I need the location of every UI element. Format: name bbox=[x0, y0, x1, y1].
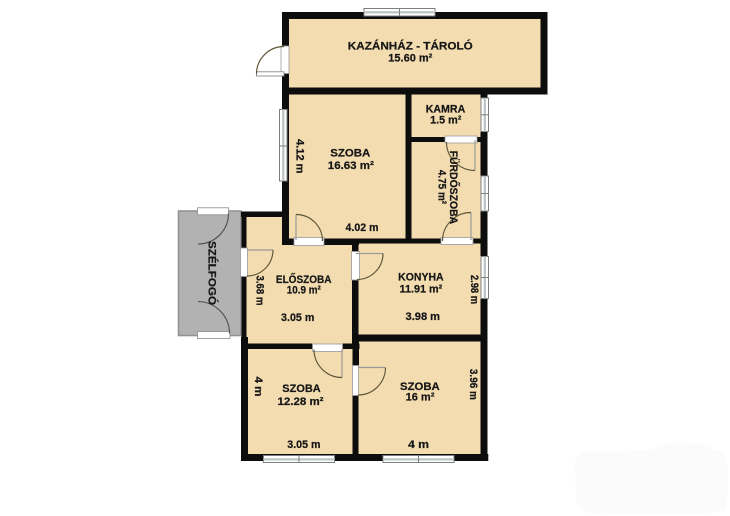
svg-text:11.91 m²: 11.91 m² bbox=[400, 283, 443, 295]
svg-text:3.96 m: 3.96 m bbox=[467, 369, 479, 400]
svg-text:2.98 m: 2.98 m bbox=[468, 275, 480, 304]
svg-text:16 m²: 16 m² bbox=[406, 392, 435, 404]
svg-text:SZOBA: SZOBA bbox=[330, 148, 370, 160]
svg-text:FÜRDŐSZOBA: FÜRDŐSZOBA bbox=[447, 151, 460, 225]
svg-text:4 m: 4 m bbox=[408, 439, 429, 451]
svg-text:3.68 m: 3.68 m bbox=[254, 276, 266, 306]
svg-text:1.5 m²: 1.5 m² bbox=[430, 115, 461, 127]
svg-text:KAZÁNHÁZ - TÁROLÓ: KAZÁNHÁZ - TÁROLÓ bbox=[348, 40, 473, 53]
svg-text:3.05 m: 3.05 m bbox=[287, 439, 320, 451]
svg-text:SZOBA: SZOBA bbox=[282, 383, 320, 395]
svg-text:15.60 m²: 15.60 m² bbox=[388, 53, 432, 65]
svg-text:3.98 m: 3.98 m bbox=[406, 311, 441, 323]
svg-text:SZÉLFOGÓ: SZÉLFOGÓ bbox=[206, 241, 219, 305]
svg-text:16.63 m²: 16.63 m² bbox=[328, 160, 374, 172]
svg-text:12.28 m²: 12.28 m² bbox=[278, 396, 324, 408]
svg-text:4 m: 4 m bbox=[252, 377, 264, 397]
svg-text:3.05 m: 3.05 m bbox=[281, 312, 314, 324]
svg-text:4.12 m: 4.12 m bbox=[294, 139, 306, 174]
svg-text:4.02 m: 4.02 m bbox=[346, 222, 379, 234]
svg-text:4.75 m²: 4.75 m² bbox=[435, 170, 447, 204]
svg-text:KONYHA: KONYHA bbox=[398, 271, 444, 283]
svg-text:10.9 m²: 10.9 m² bbox=[287, 285, 321, 297]
